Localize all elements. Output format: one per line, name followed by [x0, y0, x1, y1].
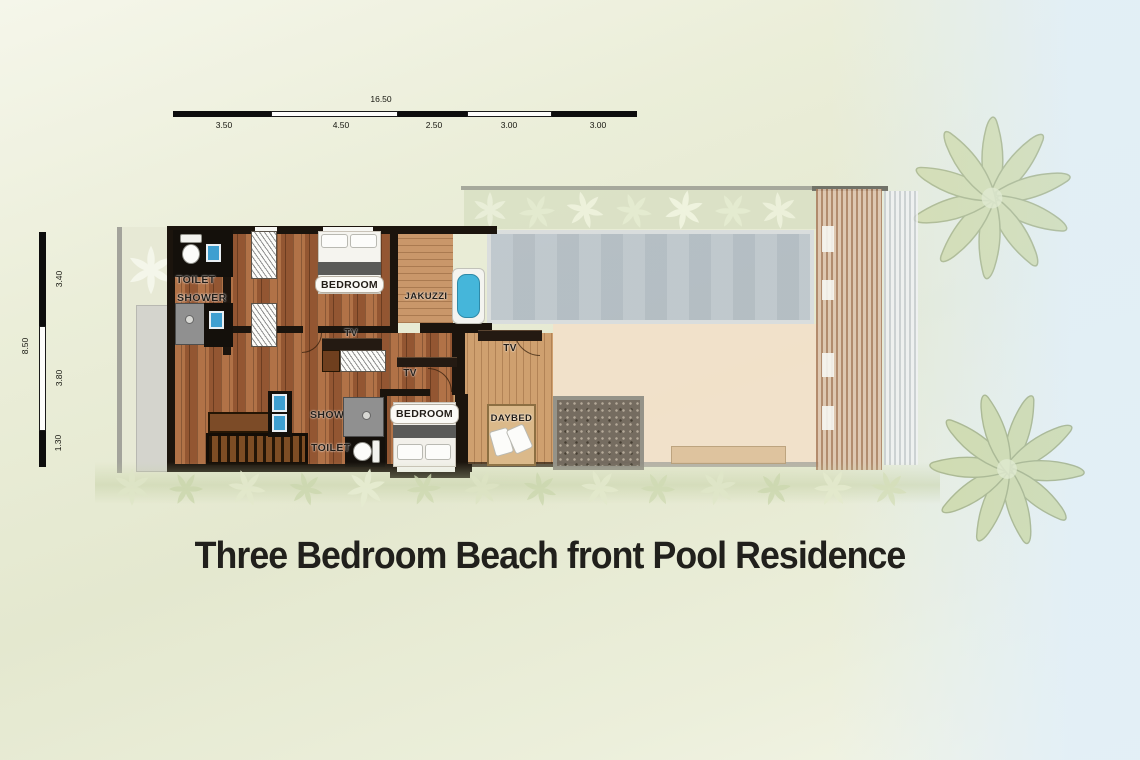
dim-label: 3.50	[204, 120, 244, 130]
scale-segment	[39, 232, 46, 326]
dim-label: 3.80	[54, 361, 64, 395]
side-path	[136, 305, 170, 472]
sofa-bench	[340, 350, 386, 372]
bed-pillow	[350, 234, 377, 248]
sink-basin	[206, 244, 221, 262]
scale-segment	[173, 111, 271, 117]
dim-total-width: 16.50	[361, 94, 401, 104]
toilet-fixture	[180, 234, 202, 243]
scale-segment	[271, 111, 398, 117]
dim-label: 3.40	[54, 262, 64, 296]
shower-head-icon	[362, 411, 371, 420]
room-label-bedroom-upper: BEDROOM	[315, 276, 384, 293]
dim-label: 2.50	[414, 120, 454, 130]
toilet-fixture	[182, 244, 200, 264]
leaf-cluster-icon	[470, 190, 510, 230]
scale-segment	[398, 111, 467, 117]
room-label-tv-deck: TV	[496, 343, 524, 354]
slatted-screen	[884, 191, 918, 465]
swimming-pool	[487, 230, 814, 324]
tv-console	[478, 330, 542, 341]
bed-pillow	[321, 234, 348, 248]
room-label-jakuzzi: JAKUZZI	[397, 292, 455, 302]
pebble-court	[553, 396, 644, 470]
bed-blanket	[393, 425, 456, 438]
dim-label: 1.30	[53, 426, 63, 460]
shower-head-icon	[185, 315, 194, 324]
sink-basin	[272, 414, 287, 432]
dim-label: 4.50	[321, 120, 361, 130]
shower-stall	[175, 303, 205, 345]
staircase	[206, 433, 308, 465]
wall-bedroom2-top	[380, 389, 430, 396]
scale-segment	[39, 326, 46, 431]
toilet-fixture	[353, 442, 372, 461]
stair-landing	[208, 412, 272, 433]
cabinet	[322, 350, 340, 372]
leaf-cluster-icon	[515, 466, 565, 511]
page-title: Three Bedroom Beach front Pool Residence	[33, 535, 1067, 578]
wardrobe	[251, 303, 277, 347]
jacuzzi-water	[457, 274, 480, 318]
room-label-toilet-lower: TOILET	[311, 443, 351, 455]
room-label-daybed: DAYBED	[487, 414, 536, 424]
scale-segment	[552, 111, 637, 117]
sink-basin	[209, 311, 224, 329]
bed-pillow	[425, 444, 451, 460]
bed-pillow	[397, 444, 423, 460]
jacuzzi-deck	[397, 233, 453, 323]
leaf-cluster-icon	[108, 466, 156, 508]
slat-opening	[822, 280, 834, 300]
wall-bedroom-right	[390, 233, 398, 333]
dim-label: 3.00	[578, 120, 618, 130]
room-label-toilet-upper: TOILET	[176, 275, 216, 287]
wardrobe	[251, 231, 277, 279]
palm-tree-icon	[903, 107, 1081, 289]
slat-opening	[822, 226, 834, 252]
scale-segment	[39, 431, 46, 467]
floor-plan-page: 16.50 3.50 4.50 2.50 3.00 3.00 8.50 3.40…	[0, 0, 1140, 760]
sink-basin	[272, 394, 287, 412]
leaf-cluster-icon	[657, 184, 712, 236]
bed-blanket	[318, 262, 381, 275]
leaf-cluster-icon	[336, 461, 396, 515]
toilet-fixture	[372, 440, 380, 463]
tv-console	[397, 357, 457, 367]
room-label-tv-hall: TV	[395, 368, 425, 379]
dim-label: 3.00	[489, 120, 529, 130]
scale-segment	[467, 111, 552, 117]
dim-total-height: 8.50	[20, 329, 30, 363]
slat-opening	[822, 353, 834, 377]
room-label-bedroom-lower: BEDROOM	[390, 404, 459, 424]
slat-opening	[822, 406, 834, 430]
